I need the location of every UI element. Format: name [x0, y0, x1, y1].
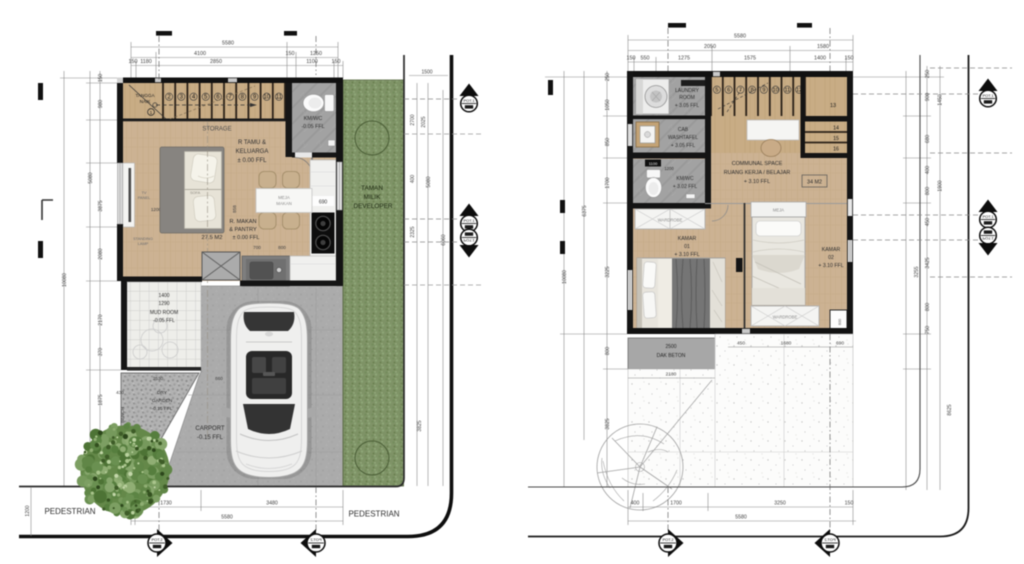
svg-text:680: 680	[925, 135, 931, 144]
svg-text:+ 3.02 FFL: + 3.02 FFL	[673, 184, 698, 190]
svg-text:3255: 3255	[914, 266, 920, 277]
svg-text:5080: 5080	[426, 176, 432, 187]
svg-text:RUANG KERJA / BELAJAR: RUANG KERJA / BELAJAR	[724, 170, 791, 176]
svg-text:3225: 3225	[605, 266, 611, 277]
svg-text:WARDROBE: WARDROBE	[773, 315, 798, 320]
svg-text:SOFA: SOFA	[190, 191, 201, 195]
svg-text:5580: 5580	[735, 515, 747, 521]
svg-text:1200: 1200	[25, 505, 31, 516]
svg-text:150: 150	[627, 56, 636, 62]
svg-text:150: 150	[845, 56, 854, 62]
svg-text:150: 150	[332, 59, 341, 65]
svg-text:1180: 1180	[140, 59, 152, 65]
svg-text:5080: 5080	[88, 172, 94, 183]
svg-text:MILIK: MILIK	[364, 194, 381, 201]
svg-text:-0.05 FFL: -0.05 FFL	[301, 124, 324, 130]
svg-text:R. MAKAN: R. MAKAN	[229, 219, 256, 225]
svg-text:KAMAR: KAMAR	[678, 236, 697, 242]
svg-text:9: 9	[762, 88, 765, 94]
svg-text:01: 01	[684, 244, 690, 250]
svg-text:1400: 1400	[158, 293, 169, 299]
svg-text:5580: 5580	[734, 34, 746, 40]
svg-text:R TAMU &: R TAMU &	[238, 140, 266, 146]
svg-text:2170: 2170	[98, 314, 104, 325]
svg-text:LAMP: LAMP	[138, 241, 149, 246]
svg-text:5580: 5580	[221, 515, 233, 521]
svg-text:MEJA: MEJA	[773, 208, 784, 213]
svg-text:2080: 2080	[98, 248, 104, 259]
svg-text:3825: 3825	[417, 420, 423, 431]
svg-text:PEDESTRIAN: PEDESTRIAN	[348, 510, 399, 519]
svg-text:10: 10	[263, 95, 270, 101]
svg-text:2325: 2325	[410, 226, 416, 237]
svg-text:800: 800	[925, 187, 931, 196]
svg-text:3480: 3480	[266, 501, 278, 507]
svg-text:5580: 5580	[222, 41, 234, 47]
svg-text:STORAGE: STORAGE	[202, 127, 231, 133]
svg-text:COMMUNAL SPACE: COMMUNAL SPACE	[732, 161, 783, 167]
svg-text:750: 750	[925, 326, 931, 335]
svg-text:KAMAR: KAMAR	[822, 247, 841, 253]
svg-text:400: 400	[410, 175, 416, 184]
svg-text:150: 150	[98, 74, 104, 83]
svg-text:3825: 3825	[605, 418, 611, 429]
svg-text:+ 3.10 FFL: + 3.10 FFL	[744, 179, 770, 185]
svg-text:430: 430	[116, 390, 124, 395]
svg-text:150: 150	[845, 501, 854, 507]
svg-text:10080: 10080	[562, 270, 568, 284]
svg-text:2050: 2050	[704, 44, 716, 50]
svg-text:11: 11	[785, 88, 791, 94]
svg-text:TAMAN: TAMAN	[361, 185, 383, 192]
svg-text:800: 800	[925, 303, 931, 312]
svg-text:550: 550	[641, 56, 650, 62]
svg-text:ROOM: ROOM	[679, 95, 695, 101]
svg-text:800: 800	[605, 347, 611, 356]
svg-text:27.5 M2: 27.5 M2	[202, 235, 223, 241]
svg-text:1900: 1900	[938, 180, 944, 191]
svg-text:1680: 1680	[781, 341, 792, 347]
svg-text:2180: 2180	[666, 372, 677, 378]
svg-text:& PANTRY: & PANTRY	[229, 227, 257, 233]
svg-text:1700: 1700	[605, 177, 611, 188]
svg-text:150: 150	[286, 51, 295, 57]
svg-text:BENCH: BENCH	[120, 407, 125, 423]
svg-text:1500: 1500	[421, 70, 432, 76]
svg-text:3425: 3425	[925, 257, 931, 268]
svg-text:3250: 3250	[774, 501, 786, 507]
svg-text:1200: 1200	[664, 166, 674, 171]
svg-text:450: 450	[925, 218, 931, 227]
svg-text:CAB: CAB	[678, 127, 689, 133]
svg-text:1450: 1450	[938, 94, 944, 105]
svg-text:15: 15	[833, 136, 839, 142]
svg-text:2500: 2500	[665, 344, 676, 350]
svg-text:800: 800	[278, 245, 286, 250]
svg-text:3875: 3875	[98, 200, 104, 211]
svg-text:-0.15 FFL: -0.15 FFL	[152, 406, 173, 412]
svg-text:+ 3.05 FFL: + 3.05 FFL	[675, 103, 700, 109]
svg-text:150: 150	[129, 59, 138, 65]
svg-text:8: 8	[751, 88, 754, 94]
svg-text:13: 13	[830, 103, 836, 109]
svg-text:700: 700	[253, 245, 261, 250]
svg-text:KM/WC: KM/WC	[676, 176, 694, 182]
svg-text:-0.05 FFL: -0.05 FFL	[153, 318, 175, 324]
svg-text:14: 14	[833, 126, 839, 132]
svg-text:1700: 1700	[670, 501, 682, 507]
svg-text:4100: 4100	[194, 51, 206, 57]
svg-text:MEJA: MEJA	[278, 195, 290, 200]
svg-text:WARDROBE: WARDROBE	[658, 218, 683, 223]
svg-text:1290: 1290	[158, 301, 169, 307]
svg-text:02: 02	[828, 255, 834, 261]
svg-text:MAKAN: MAKAN	[276, 201, 292, 206]
svg-text:34 M2: 34 M2	[807, 180, 822, 186]
svg-text:690: 690	[836, 341, 844, 347]
svg-text:450: 450	[737, 341, 745, 347]
svg-text:10080: 10080	[62, 273, 68, 287]
svg-text:± 0.00 FFL: ± 0.00 FFL	[238, 158, 268, 164]
svg-text:1050: 1050	[605, 99, 611, 110]
svg-text:980: 980	[98, 100, 104, 109]
svg-text:370: 370	[98, 348, 104, 357]
svg-text:DAK BETON: DAK BETON	[657, 353, 686, 359]
svg-text:1875: 1875	[98, 394, 104, 405]
svg-text:16: 16	[833, 147, 839, 153]
svg-text:+ 3.05 FFL: + 3.05 FFL	[671, 143, 696, 149]
svg-text:1580: 1580	[817, 44, 829, 50]
svg-text:860: 860	[215, 376, 223, 381]
svg-text:6375: 6375	[582, 205, 588, 216]
svg-text:1575: 1575	[744, 56, 756, 62]
svg-text:8625: 8625	[947, 404, 953, 415]
svg-text:LAUNDRY: LAUNDRY	[675, 88, 699, 94]
svg-text:250: 250	[605, 73, 611, 82]
svg-text:400: 400	[631, 501, 640, 507]
svg-text:690: 690	[319, 200, 328, 206]
svg-text:5: 5	[715, 88, 718, 94]
svg-text:1400: 1400	[814, 56, 826, 62]
svg-text:2850: 2850	[210, 59, 222, 65]
svg-text:2530: 2530	[153, 376, 164, 381]
svg-text:CARPORT: CARPORT	[195, 426, 225, 432]
svg-text:KM/WC: KM/WC	[304, 116, 323, 122]
svg-text:600: 600	[838, 319, 842, 325]
svg-text:-0.15 FFL: -0.15 FFL	[197, 435, 224, 441]
svg-text:MUD ROOM: MUD ROOM	[150, 310, 178, 316]
svg-text:KELUARGA: KELUARGA	[236, 149, 269, 155]
svg-text:11: 11	[276, 95, 283, 101]
svg-text:PEDESTRIAN: PEDESTRIAN	[44, 507, 95, 516]
svg-text:2700: 2700	[410, 114, 416, 125]
svg-text:PANEL: PANEL	[138, 195, 151, 200]
svg-text:± 0.00 FFL: ± 0.00 FFL	[232, 235, 259, 241]
svg-text:GARDEN: GARDEN	[152, 398, 173, 404]
svg-text:DEVELOPER: DEVELOPER	[353, 203, 392, 210]
svg-text:1275: 1275	[678, 56, 690, 62]
svg-text:+ 3.10 FFL: + 3.10 FFL	[818, 263, 843, 269]
svg-text:6: 6	[727, 88, 730, 94]
svg-text:1730: 1730	[160, 501, 172, 507]
svg-text:+ 3.10 FFL: + 3.10 FFL	[674, 252, 699, 258]
svg-text:400: 400	[925, 166, 931, 175]
svg-text:1100: 1100	[649, 161, 658, 166]
svg-text:DRY: DRY	[157, 390, 168, 396]
svg-text:858: 858	[232, 205, 237, 213]
svg-text:250: 250	[925, 70, 931, 79]
svg-text:850: 850	[605, 138, 611, 147]
svg-text:2025: 2025	[421, 116, 427, 127]
svg-text:6060: 6060	[441, 234, 447, 245]
svg-text:WASHTAFEL: WASHTAFEL	[668, 135, 698, 141]
svg-text:10: 10	[773, 88, 779, 94]
